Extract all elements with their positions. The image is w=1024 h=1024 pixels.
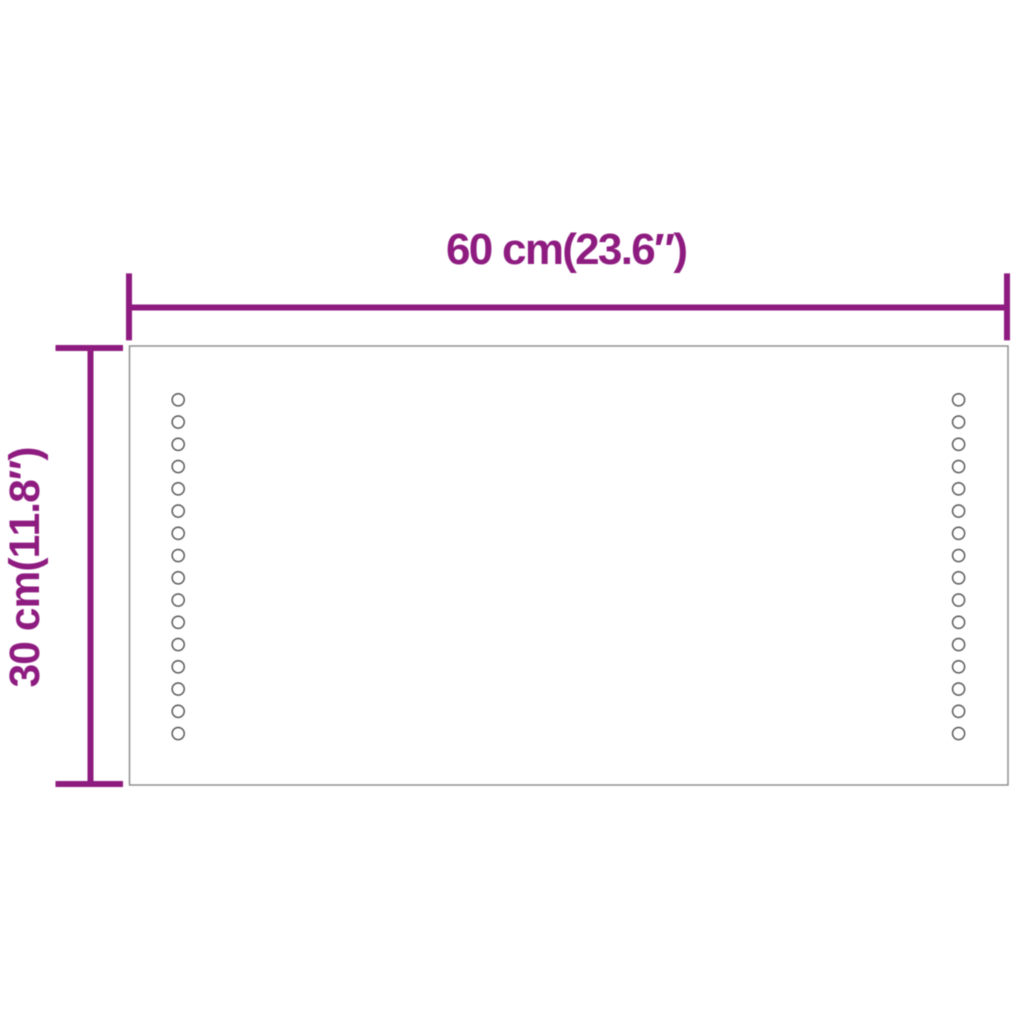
svg-text:60 cm(23.6″): 60 cm(23.6″) xyxy=(446,225,688,274)
svg-text:30 cm(11.8″): 30 cm(11.8″) xyxy=(2,447,49,688)
